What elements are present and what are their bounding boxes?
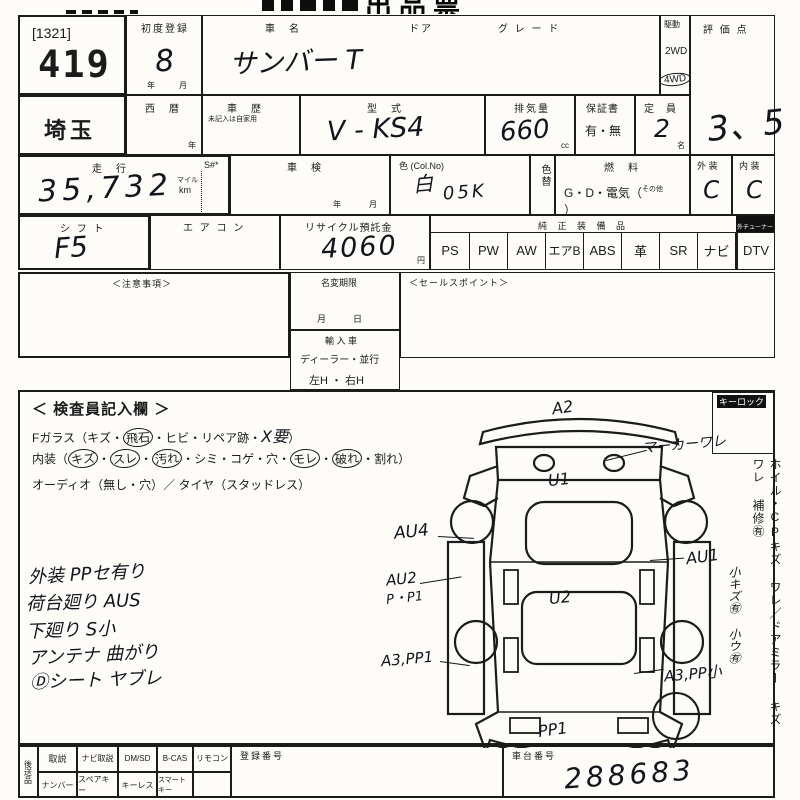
sales-point-box: ＜セールスポイント＞ (400, 272, 775, 358)
sales-label: ＜セールスポイント＞ (409, 276, 509, 289)
interior-prefix: 内装（ (32, 452, 68, 466)
model-box: 型 式 V - KS4 (300, 95, 485, 155)
glass-hand-x: X要 (261, 427, 288, 446)
drive-type-box: 駆動 2WD 4WD (660, 15, 690, 95)
interior-line: 内装（キズ・スレ・汚れ・シミ・コゲ・穴・モレ・破れ・割れ） (32, 449, 410, 468)
seireki-label: 西 暦 (145, 100, 181, 115)
title-glyph-fragment (262, 0, 274, 11)
interior-circled-more: モレ (289, 448, 320, 469)
aircon-box: エ ア コ ン (150, 215, 280, 270)
recycle-value: 4060 (320, 230, 398, 265)
inspection-date-box: 車 検 年 月 (230, 155, 390, 215)
color-change-label: 色替 (537, 164, 552, 188)
glass-mid: ・ヒビ・リペア跡・ (153, 431, 261, 445)
title-glyph-fragment (342, 0, 358, 11)
sendlater-cell: 後送品 (18, 745, 38, 798)
equip-ps: PS (431, 232, 470, 269)
car-name-value: サンバー T (228, 38, 362, 82)
equipment-header-cell: 純 正 装 備 品 (431, 216, 737, 233)
damage-au2-sub: P・P1 (385, 585, 424, 608)
equip-airb: エアB (546, 232, 584, 269)
fuel-pre: G・D・電気（ (564, 186, 642, 200)
first-reg-unit: 年 月 (147, 80, 195, 91)
first-reg-label: 初度登録 (141, 20, 189, 35)
dot: ・ (140, 452, 152, 466)
cell-keyless: キーレス (118, 772, 157, 798)
drive-4wd-circled: 4WD (658, 71, 691, 87)
damage-u1: U1 (547, 469, 571, 490)
tuner-header-cell: 外チューナー無 (736, 216, 774, 233)
wheel-mirror-note: ホイル・CPキズ ワレ／ドアミラー キズ ワレ 補修㊒ (750, 458, 784, 743)
displacement-value: 660 (499, 114, 551, 147)
aircon-label: エ ア コ ン (183, 219, 245, 234)
capacity-label: 定 員 (644, 100, 677, 115)
score-value: 3、5 (705, 94, 787, 151)
car-name-box: 車 名 ドア グ レ ー ド サンバー T (202, 15, 660, 95)
mileage-unit-mile: マイル (177, 175, 198, 185)
interior-grade-box: 内 装 C (732, 155, 775, 215)
warranty-value: 有・無 (585, 122, 621, 139)
capacity-unit: 名 (677, 140, 685, 151)
warranty-label: 保証書 (586, 100, 619, 115)
title-glyph-fragment (323, 0, 335, 11)
cell-smart-key: スマートキー (157, 772, 193, 798)
damage-front: A2 (551, 397, 575, 419)
damage-rear: PP1 (537, 718, 569, 741)
seireki-unit: 年 (188, 140, 196, 151)
interior-circled-kizu: キズ (67, 448, 98, 469)
shift-value: F5 (53, 230, 89, 265)
notes-label: ＜注意事項＞ (112, 277, 172, 290)
exterior-value: C (702, 175, 721, 204)
lot-number: 419 (38, 43, 111, 86)
inspection-label: 車 検 (287, 159, 323, 174)
registration-label: 登録番号 (240, 749, 284, 762)
auction-sheet: 出品票 [1321] 419 初度登録 8 年 月 車 名 ドア グ レ ー ド… (0, 0, 800, 800)
import-type: ディーラー・並行 (300, 351, 379, 366)
equip-sr: SR (660, 232, 698, 269)
equipment-box: 純 正 装 備 品 外チューナー無 PS PW AW エアB ABS 革 SR … (430, 215, 775, 270)
displacement-label: 排気量 (514, 100, 550, 115)
first-registration-box: 初度登録 8 年 月 (126, 15, 202, 95)
import-handle: 左H ・ 右H (309, 372, 364, 388)
capacity-value: 2 (654, 114, 670, 143)
capacity-box: 定 員 2 名 (635, 95, 690, 155)
glass-circled-tobiishi: 飛石 (122, 427, 153, 448)
first-reg-value: 8 (154, 43, 176, 80)
fuel-value: G・D・電気（その他 ） (564, 184, 689, 218)
prefecture-box: 埼玉 (18, 95, 126, 155)
title-text: 出品票 (365, 0, 467, 14)
fuel-box: 燃 料 G・D・電気（その他 ） (555, 155, 690, 215)
recycle-box: リサイクル預託金 4060 円 (280, 215, 430, 270)
interior-suffix: ・割れ） (362, 452, 410, 466)
equipment-header: 純 正 装 備 品 (538, 221, 629, 231)
history-box: 車 歴 未記入は自家用 (202, 95, 300, 155)
cell-navi-manual: ナビ取説 (77, 745, 118, 772)
fuel-label: 燃 料 (604, 159, 640, 174)
interior-circled-sure: スレ (109, 448, 140, 469)
mileage-box: 走 行 35,732 マイル km S#* (18, 155, 230, 215)
inspection-unit: 年 月 (333, 199, 381, 210)
drive-label: 駆動 (664, 19, 680, 30)
glass-suffix: ） (288, 431, 300, 445)
damage-au4: AU4 (393, 520, 430, 544)
chassis-label: 車台番号 (512, 749, 556, 762)
exterior-label: 外 装 (697, 159, 718, 172)
shift-box: シ フ ト F5 (18, 215, 150, 270)
import-label: 輸 入 車 (325, 334, 357, 347)
recycle-unit: 円 (417, 255, 425, 266)
interior-label: 内 装 (739, 159, 760, 172)
chassis-number-box: 車台番号 288683 (503, 745, 775, 798)
exterior-grade-box: 外 装 C (690, 155, 732, 215)
cell-empty (193, 772, 231, 798)
inspector-stamp-circle (652, 692, 700, 740)
color-number: 05K (442, 181, 487, 205)
dot: ・ (320, 452, 332, 466)
equip-aw: AW (508, 232, 546, 269)
hand-note-bed: 荷台廻り AUS (26, 586, 141, 616)
car-name-label: 車 名 (265, 20, 301, 35)
cell-spare-key: スペアキー (77, 772, 118, 798)
title-glyph-fragment (300, 0, 316, 11)
name-change-label: 名変期限 (321, 276, 357, 289)
history-note: 未記入は自家用 (208, 114, 257, 124)
hand-note-seat: Ⓓシート ヤブレ (30, 664, 163, 695)
cell-manual: 取説 (38, 745, 77, 772)
dot: ・ (98, 452, 110, 466)
cell-bcas: B-CAS (157, 745, 193, 772)
equip-abs: ABS (584, 232, 622, 269)
title-glyph-fragment (281, 0, 293, 11)
inspector-title: ＜ 検査員記入欄 ＞ (32, 398, 170, 419)
warranty-box: 保証書 有・無 (575, 95, 635, 155)
notes-box: ＜注意事項＞ (18, 272, 290, 358)
hand-note-underside: 下廻り S小 (26, 614, 116, 643)
interior-value: C (745, 175, 764, 204)
cell-remocon: リモコン (193, 745, 231, 772)
scan-smudge (66, 10, 138, 14)
audio-tire-line: オーディオ（無し・穴）／ タイヤ（スタッドレス） (32, 476, 310, 493)
mileage-unit-km: km (179, 185, 191, 195)
drive-2wd: 2WD (665, 46, 687, 57)
import-box: 輸 入 車 ディーラー・並行 左H ・ 右H (290, 330, 400, 390)
name-change-box: 名変期限 月 日 (290, 272, 400, 330)
serial-label: S#* (204, 160, 219, 170)
registration-number-box: 登録番号 (231, 745, 503, 798)
corner-tag: [1321] (32, 25, 71, 41)
grade-label: グ レ ー ド (498, 20, 560, 35)
cell-number-plate: ナンバー (38, 772, 77, 798)
mileage-value: 35,732 (37, 167, 174, 209)
interior-circled-yogore: 汚れ (151, 448, 182, 469)
model-value: V - KS4 (326, 111, 425, 147)
cell-dm-sd: DM/SD (118, 745, 157, 772)
sendlater-label: 後送品 (23, 760, 34, 784)
equip-pw: PW (470, 232, 508, 269)
glass-prefix: Fガラス（キズ・ (32, 431, 123, 445)
equip-dtv: DTV (736, 232, 774, 269)
prefecture: 埼玉 (44, 113, 96, 145)
color-value: 白 (412, 167, 434, 198)
score-label: 評 価 点 (703, 21, 749, 36)
equip-leather: 革 (622, 232, 660, 269)
damage-u2: U2 (548, 587, 572, 608)
lot-number-box: [1321] 419 (18, 15, 126, 95)
equip-navi: ナビ (698, 232, 736, 269)
sheet-title-clipped: 出品票 (262, 0, 562, 14)
interior-circled-yabure: 破れ (332, 448, 363, 469)
color-change-box: 色替 (530, 155, 555, 215)
score-box: 評 価 点 3、5 (690, 15, 775, 155)
name-change-unit: 月 日 (317, 312, 362, 325)
displacement-box: 排気量 660 cc (485, 95, 575, 155)
history-label: 車 歴 (227, 100, 263, 115)
fuel-other: その他 (642, 186, 663, 193)
chassis-value: 288683 (563, 753, 696, 795)
glass-line: Fガラス（キズ・飛石・ヒビ・リペア跡・X要） (32, 423, 300, 447)
mileage-divider (201, 171, 202, 214)
color-box: 色 (Col.No) 白 05K (390, 155, 530, 215)
seireki-box: 西 暦 年 (126, 95, 202, 155)
interior-mid: ・シミ・コゲ・穴・ (182, 452, 290, 466)
displacement-unit: cc (561, 141, 569, 150)
door-label: ドア (409, 20, 433, 35)
